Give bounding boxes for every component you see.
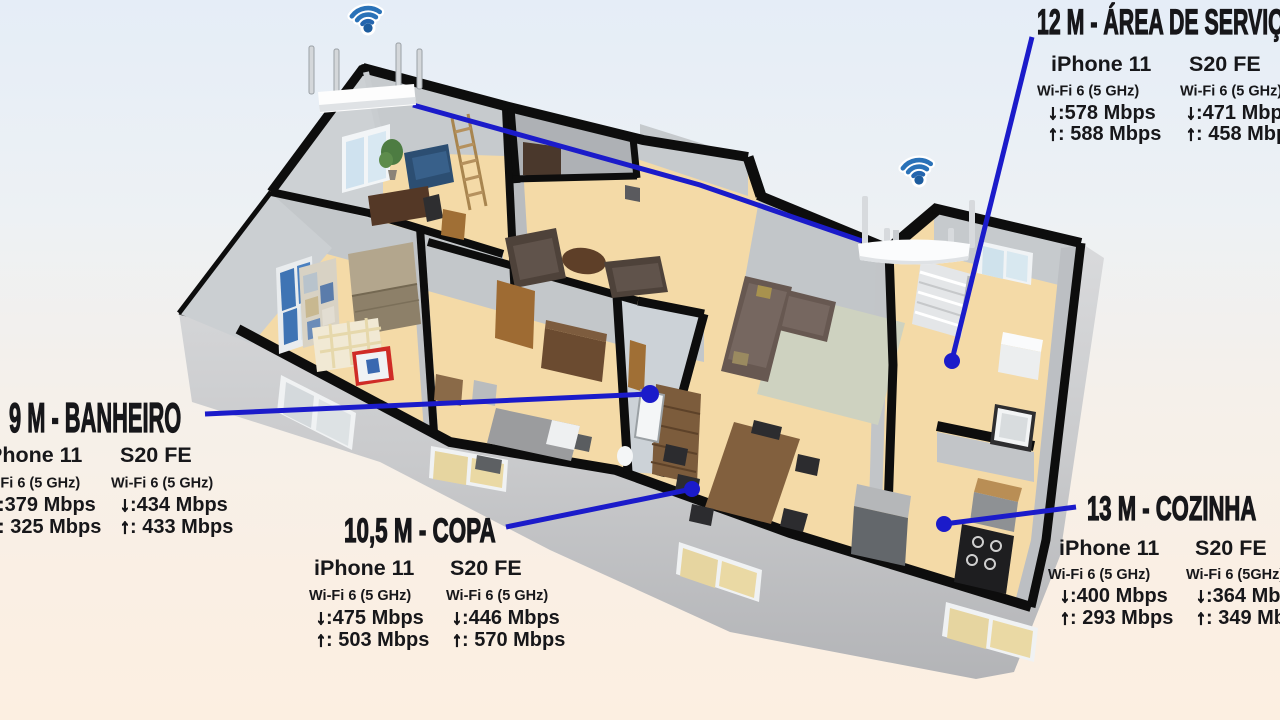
svg-text:↓:434 Mbps: ↓:434 Mbps <box>120 494 228 516</box>
svg-text:9 M - BANHEIRO: 9 M - BANHEIRO <box>9 396 181 442</box>
svg-text:↓:400 Mbps: ↓:400 Mbps <box>1060 585 1168 607</box>
svg-text:13 M - COZINHA: 13 M - COZINHA <box>1087 490 1256 528</box>
svg-text:↑: 503 Mbps: ↑: 503 Mbps <box>316 629 429 651</box>
svg-text:S20 FE: S20 FE <box>1189 52 1261 76</box>
svg-text:↑: 349 Mbps: ↑: 349 Mbps <box>1196 607 1280 629</box>
svg-text:Wi-Fi 6 (5 GHz): Wi-Fi 6 (5 GHz) <box>1180 84 1280 100</box>
svg-text:↓:475 Mbps: ↓:475 Mbps <box>316 607 424 629</box>
svg-text:↑: 588 Mbps: ↑: 588 Mbps <box>1048 123 1161 145</box>
svg-text:↓:364 Mbps: ↓:364 Mbps <box>1196 585 1280 607</box>
svg-text:10,5 M - COPA: 10,5 M - COPA <box>344 512 496 550</box>
svg-text:↑: 570 Mbps: ↑: 570 Mbps <box>452 629 565 651</box>
svg-text:↑: 458 Mbps: ↑: 458 Mbps <box>1186 123 1280 145</box>
svg-text:12 M - ÁREA DE SERVIÇO: 12 M - ÁREA DE SERVIÇO <box>1037 1 1280 42</box>
svg-text:Wi-Fi 6 (5 GHz): Wi-Fi 6 (5 GHz) <box>1037 84 1139 100</box>
svg-text:S20 FE: S20 FE <box>1195 536 1267 560</box>
svg-text:iPhone 11: iPhone 11 <box>314 556 414 580</box>
svg-text:Wi-Fi 6 (5 GHz): Wi-Fi 6 (5 GHz) <box>446 588 548 604</box>
svg-text:Wi-Fi 6 (5 GHz): Wi-Fi 6 (5 GHz) <box>1048 567 1150 583</box>
svg-text:↑: 325 Mbps: ↑: 325 Mbps <box>0 516 101 538</box>
svg-text:Wi-Fi 6 (5 GHz): Wi-Fi 6 (5 GHz) <box>111 476 213 492</box>
svg-text:Wi-Fi 6 (5GHz): Wi-Fi 6 (5GHz) <box>1186 567 1280 583</box>
svg-text:↓:578 Mbps: ↓:578 Mbps <box>1048 102 1156 124</box>
svg-text:iPhone 11: iPhone 11 <box>1051 52 1151 76</box>
svg-text:Wi-Fi 6 (5 GHz): Wi-Fi 6 (5 GHz) <box>0 476 80 492</box>
svg-text:↓:471 Mbps: ↓:471 Mbps <box>1186 102 1280 124</box>
svg-text:↓:379 Mbps: ↓:379 Mbps <box>0 494 96 516</box>
svg-text:↑: 293 Mbps: ↑: 293 Mbps <box>1060 607 1173 629</box>
svg-text:S20 FE: S20 FE <box>450 556 522 580</box>
svg-text:↑: 433 Mbps: ↑: 433 Mbps <box>120 516 233 538</box>
svg-text:S20 FE: S20 FE <box>120 443 192 467</box>
svg-text:iPhone 11: iPhone 11 <box>1059 536 1159 560</box>
svg-text:↓:446 Mbps: ↓:446 Mbps <box>452 607 560 629</box>
svg-text:iPhone 11: iPhone 11 <box>0 443 82 467</box>
svg-text:Wi-Fi 6 (5 GHz): Wi-Fi 6 (5 GHz) <box>309 588 411 604</box>
